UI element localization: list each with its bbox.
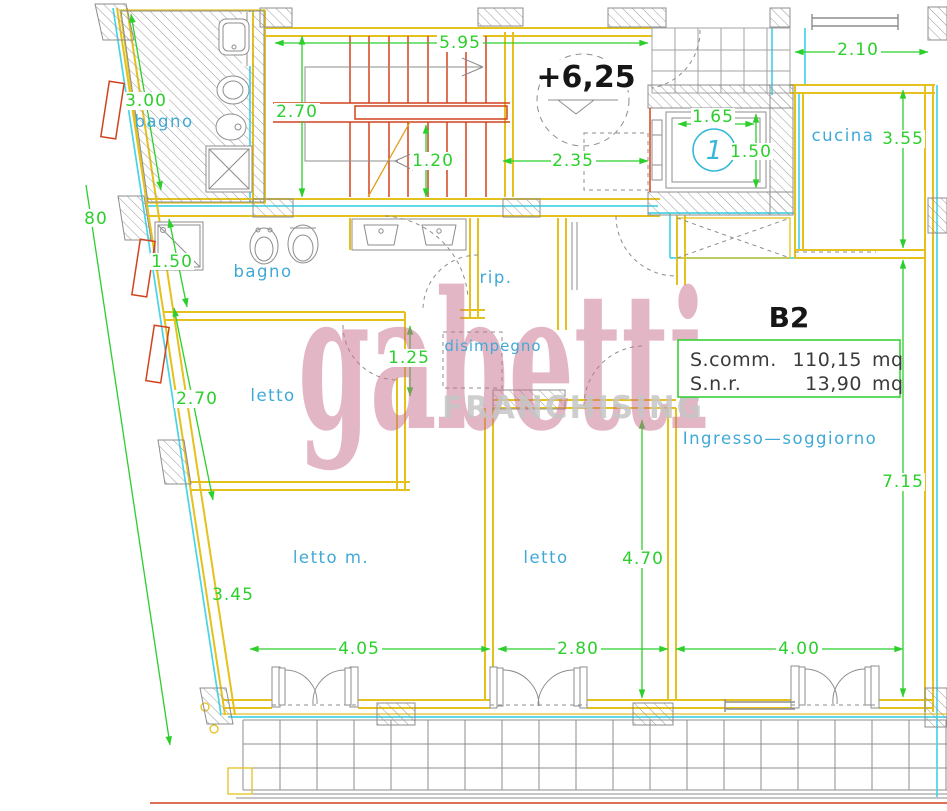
bidet-icon-2 (250, 228, 278, 264)
dim-soggiorno-width: 4.00 (778, 639, 820, 659)
dim-letto-m-width: 4.05 (338, 639, 380, 659)
dim-elevator-width: 1.65 (692, 107, 734, 127)
unit-code: B2 (769, 301, 810, 334)
room-label-bagno-top: bagno (134, 112, 193, 131)
toilet-icon (217, 76, 249, 104)
dim-letto-m-slant: 3.45 (212, 585, 254, 605)
elevator-number: 1 (706, 136, 723, 166)
floor-plan-svg: 1 (0, 0, 947, 811)
area-row-unit: mq (872, 349, 904, 371)
landing-tiles (652, 28, 790, 93)
dim-shower: 1.50 (151, 252, 193, 272)
dim-letto2-height: 4.70 (622, 549, 664, 569)
dim-letto-width: 2.70 (176, 389, 218, 409)
dim-top-right: 2.10 (837, 40, 879, 60)
dim-disimpegno: 1.25 (388, 348, 430, 368)
dim-stair-flight: 1.20 (412, 151, 454, 171)
area-row-value: 13,90 (805, 373, 862, 395)
watermark-subtitle: FRANCHISING (442, 390, 704, 426)
double-sink-icon (352, 219, 466, 250)
room-label-cucina: cucina (812, 126, 875, 145)
elevation-value: +6,25 (536, 60, 635, 95)
bathtub-icon (219, 19, 249, 55)
area-row-label: S.n.r. (690, 373, 741, 395)
dim-top-width: 5.95 (439, 33, 481, 53)
dim-soggiorno-height: 7.15 (882, 472, 924, 492)
room-label-disimpegno: disimpegno (444, 337, 541, 355)
dim-cucina-height: 3.55 (882, 129, 924, 149)
floor-plan-page: 1 (0, 0, 947, 811)
dim-stair-height: 2.70 (276, 102, 318, 122)
area-row-unit: mq (872, 373, 904, 395)
room-label-bagno: bagno (233, 262, 292, 281)
landing-door-swing (652, 30, 700, 88)
unit-info: B2 S.comm. 110,15 mq S.n.r. 13,90 mq (678, 301, 904, 397)
level-triangle-icon (558, 100, 594, 114)
shower-icon (206, 146, 252, 192)
room-label-rip: rip. (479, 268, 512, 287)
room-label-letto-m: letto m. (293, 548, 369, 567)
dim-elevator-depth: 1.50 (730, 142, 772, 162)
dim-bagno-top: 3.00 (125, 91, 167, 111)
area-row-label: S.comm. (690, 349, 777, 371)
balcony (150, 703, 947, 803)
dim-landing: 2.35 (552, 151, 594, 171)
dim-wall-80: 80 (84, 209, 108, 229)
bidet-icon (216, 114, 246, 140)
room-label-soggiorno: Ingresso—soggiorno (683, 429, 878, 448)
dim-letto2-width: 2.80 (557, 639, 599, 659)
stair-direction-arrow (305, 58, 483, 170)
room-label-letto2: letto (523, 548, 568, 567)
room-label-letto: letto (250, 386, 295, 405)
area-row-value: 110,15 (793, 349, 862, 371)
